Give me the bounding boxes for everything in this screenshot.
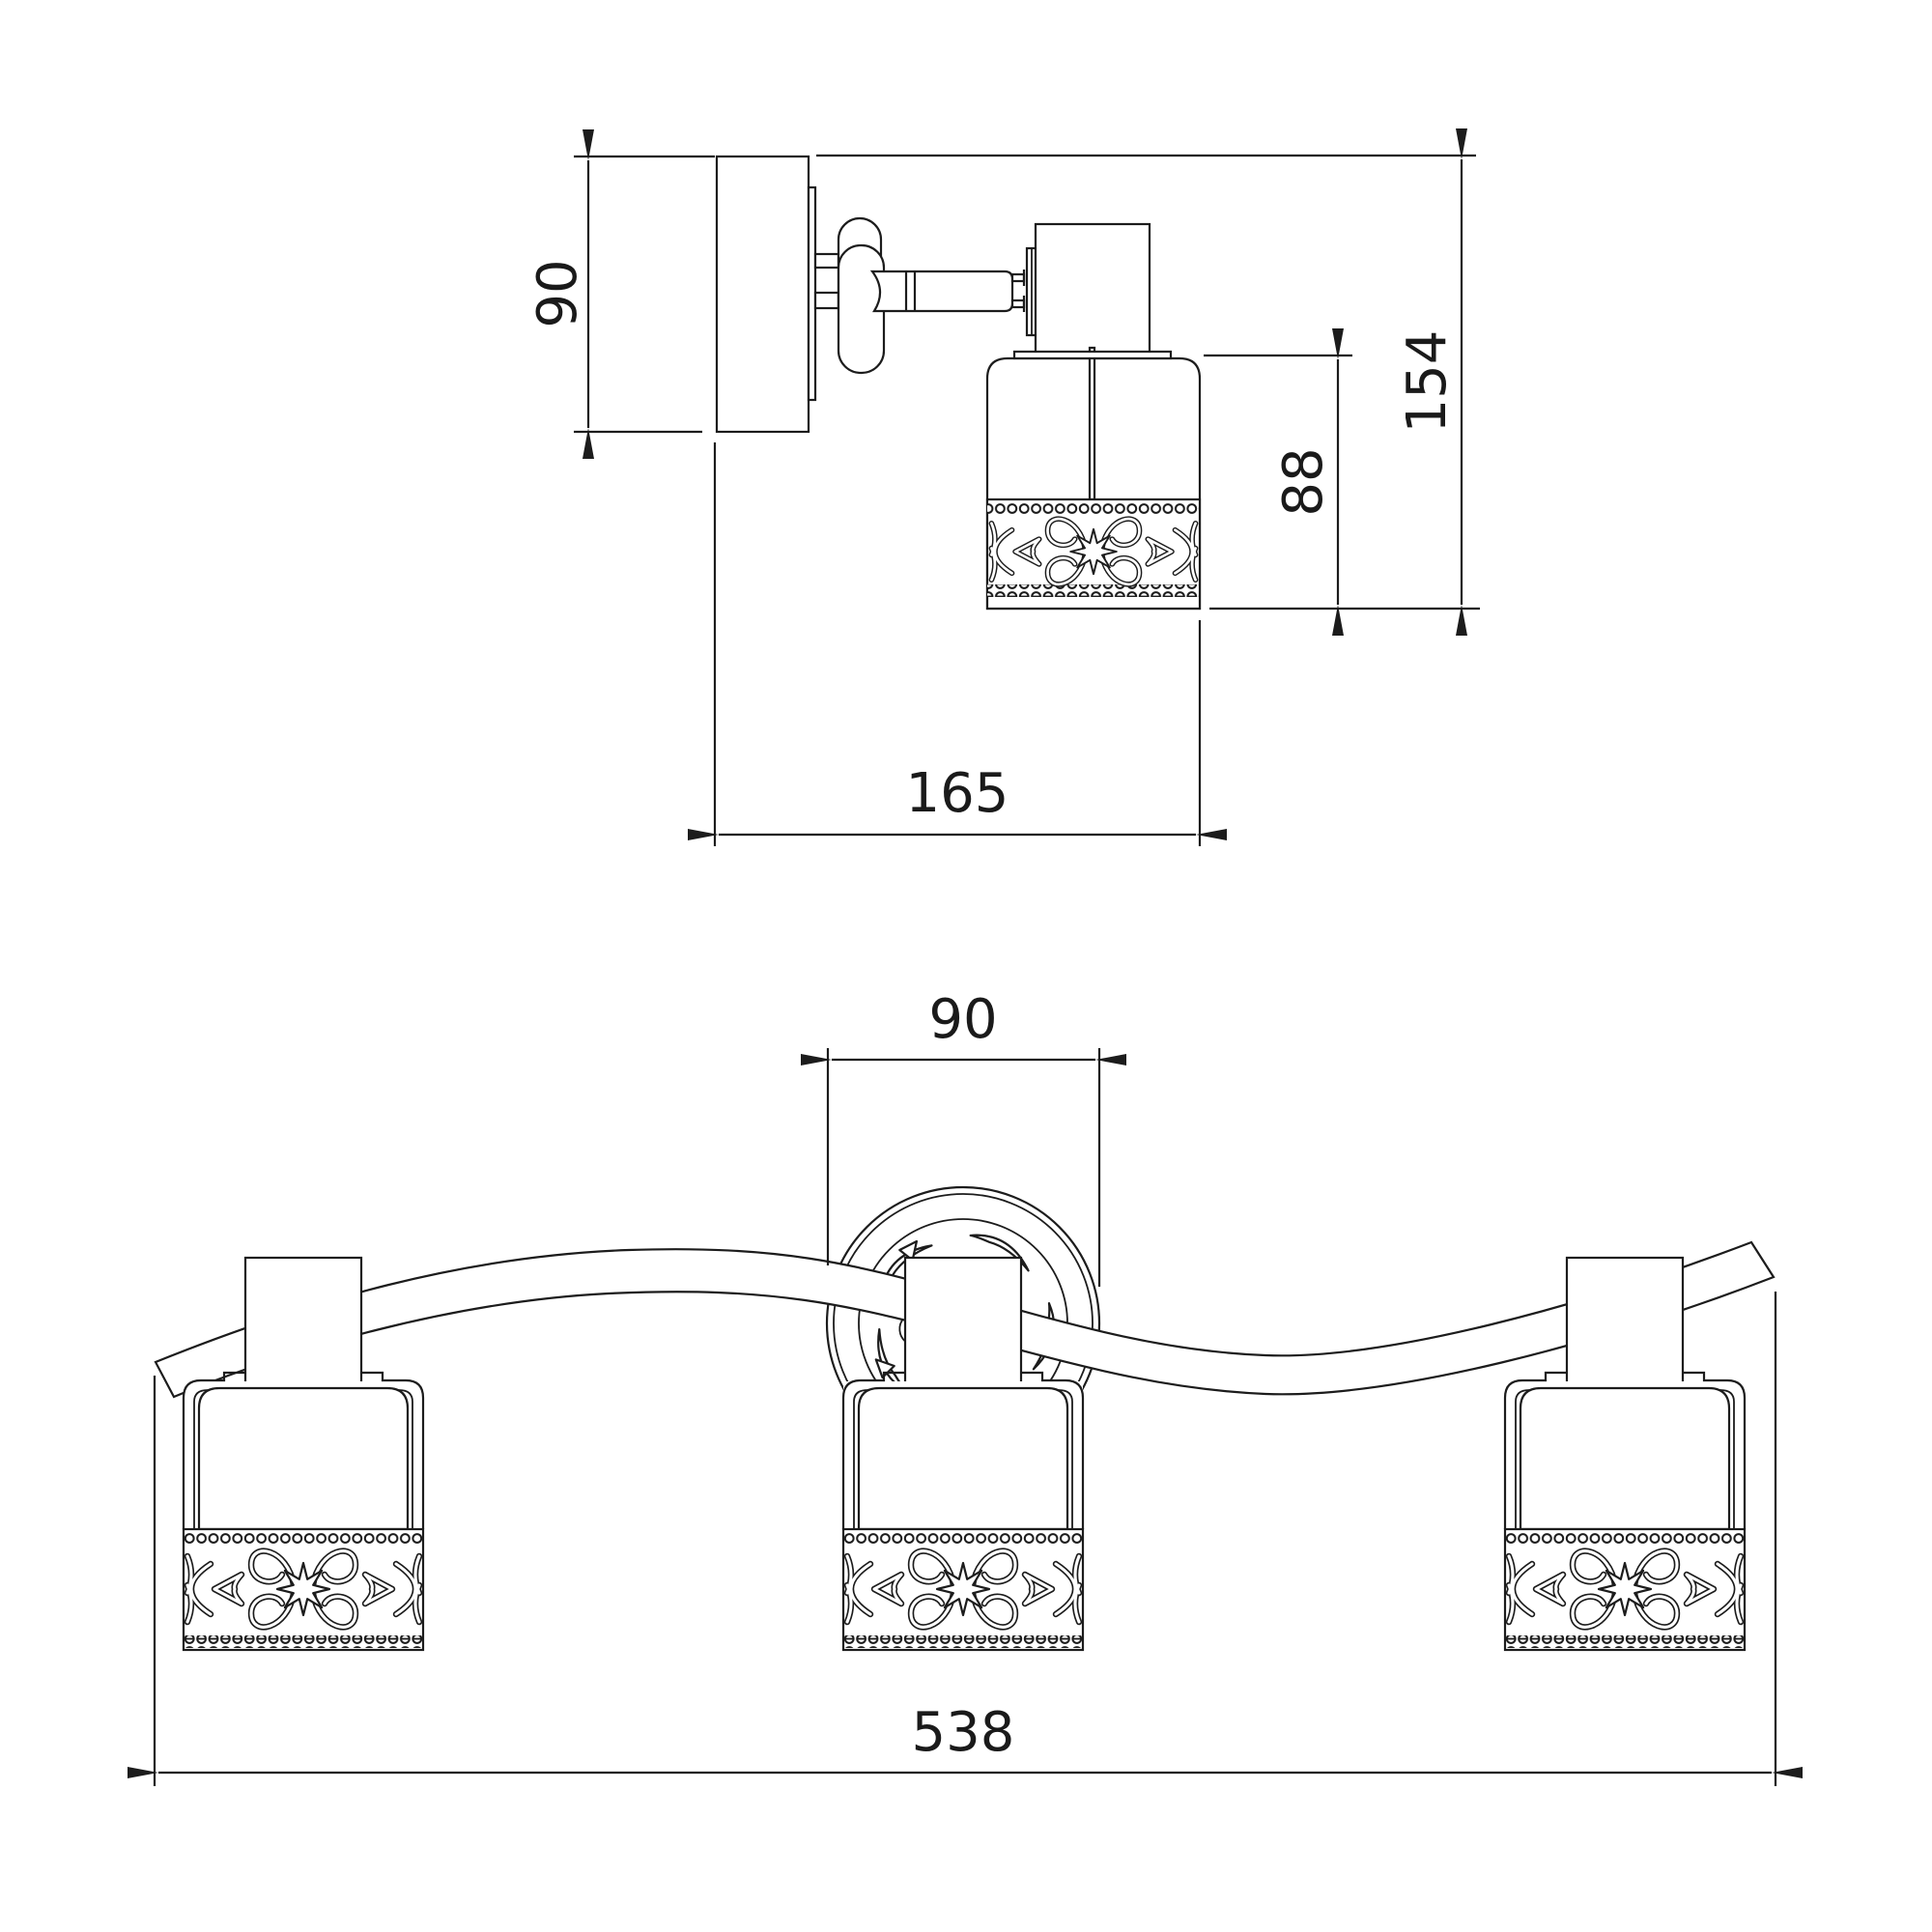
dim-label-canopy-diameter: 90 [928,988,997,1051]
dim-label-overall-height: 154 [1396,330,1459,434]
shade-band-side [987,499,1200,609]
wall-plate [717,156,809,432]
shade-flange [1014,352,1171,358]
dim-label-shade-height: 88 [1272,447,1335,516]
lamp-holder-rod [1090,348,1094,499]
technical-drawing: 90 154 88 165 [0,0,1932,1932]
lamp-head-body [1036,224,1150,353]
dim-label-overall-width: 538 [912,1701,1015,1764]
drawing-page: 90 154 88 165 [0,0,1932,1932]
side-view: 90 154 88 165 [526,156,1480,846]
dim-label-plate-height: 90 [526,259,589,327]
arm-tube [872,271,1012,311]
front-view: 90 538 [155,988,1776,1786]
dim-label-overall-depth: 165 [906,762,1009,825]
